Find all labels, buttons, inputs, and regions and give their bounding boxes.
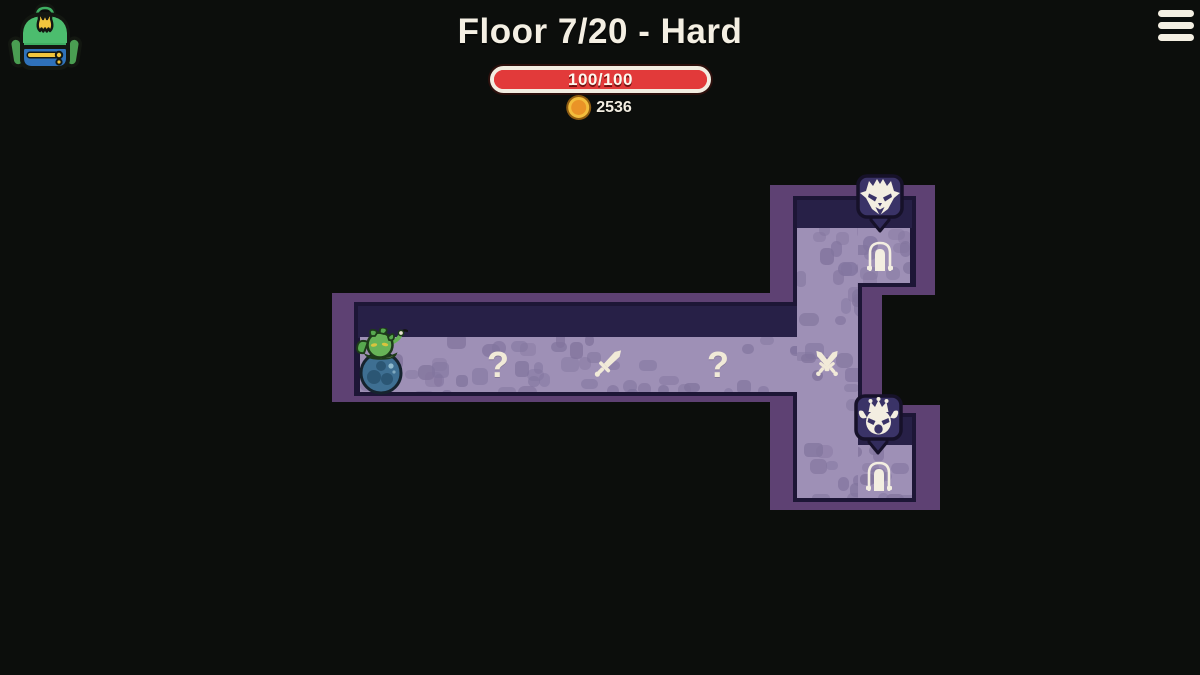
floor-stone	[579, 357, 590, 370]
floor-stone	[835, 316, 846, 325]
floor-stone	[414, 391, 433, 393]
floor-stone	[442, 390, 452, 392]
floor-stone	[742, 344, 755, 354]
coin-counter: 2536	[568, 97, 632, 118]
floor-stone	[638, 383, 651, 392]
floor-stone	[585, 337, 594, 346]
floor-stone	[639, 360, 657, 371]
floor-stone	[826, 461, 838, 471]
floor-stone	[556, 337, 566, 348]
hamburger-menu-icon[interactable]	[1158, 10, 1194, 41]
horned-beast-icon	[856, 174, 904, 241]
floor-stone	[498, 387, 516, 392]
floor-stone	[891, 463, 910, 474]
floor-stone	[456, 375, 468, 387]
floor-stone	[812, 494, 830, 498]
player-character	[354, 328, 408, 401]
crossed-swords-icon[interactable]	[807, 345, 847, 390]
floor-stone	[838, 477, 849, 491]
crowned-imp-icon	[854, 394, 903, 463]
floor-stone	[903, 262, 910, 274]
floor-stone	[760, 337, 774, 345]
corridor-floor-horizontal[interactable]	[360, 337, 797, 392]
floor-stone	[724, 388, 733, 392]
sword-icon[interactable]	[591, 347, 625, 386]
floor-stone	[893, 243, 910, 253]
menu-bar	[1158, 34, 1194, 41]
floor-stone	[447, 337, 466, 349]
coin-count: 2536	[596, 99, 632, 117]
floor-stone	[852, 289, 858, 304]
game-screen: Floor 7/20 - Hard 100/100 2536 ?	[0, 0, 1200, 675]
floor-stone	[899, 495, 912, 498]
floor-stone	[810, 459, 827, 474]
menu-bar	[1158, 10, 1194, 17]
floor-stone	[799, 313, 818, 326]
floor-stone	[561, 357, 580, 372]
floor-stone	[511, 341, 529, 352]
unknown-room-node[interactable]: ?	[487, 344, 509, 386]
floor-stone	[737, 380, 751, 392]
floor-stone	[816, 445, 833, 459]
floor-stone	[790, 346, 797, 354]
floor-stone	[838, 262, 858, 275]
unknown-room-node[interactable]: ?	[707, 344, 729, 386]
floor-stone	[797, 271, 806, 287]
floor-stone	[472, 368, 488, 384]
floor-stone	[847, 493, 858, 498]
menu-bar	[1158, 22, 1194, 29]
floor-stone	[659, 376, 679, 385]
backpack-icon-art	[8, 3, 82, 79]
backpack-icon[interactable]	[8, 3, 82, 79]
floor-stone	[623, 380, 637, 392]
floor-stone	[813, 232, 826, 243]
door-icon[interactable]	[866, 460, 892, 497]
health-bar: 100/100	[490, 66, 711, 93]
floor-title: Floor 7/20 - Hard	[458, 12, 743, 52]
floor-stone	[678, 384, 692, 392]
floor-stone	[432, 362, 449, 378]
floor-stone	[658, 385, 669, 392]
floor-stone	[820, 248, 834, 265]
door-icon[interactable]	[867, 240, 893, 277]
health-bar-label: 100/100	[568, 70, 633, 90]
floor-stone	[607, 385, 619, 392]
coin-icon	[568, 97, 589, 118]
interior-wall-horizontal	[358, 306, 798, 338]
floor-stone	[527, 369, 545, 381]
floor-stone	[758, 386, 770, 392]
